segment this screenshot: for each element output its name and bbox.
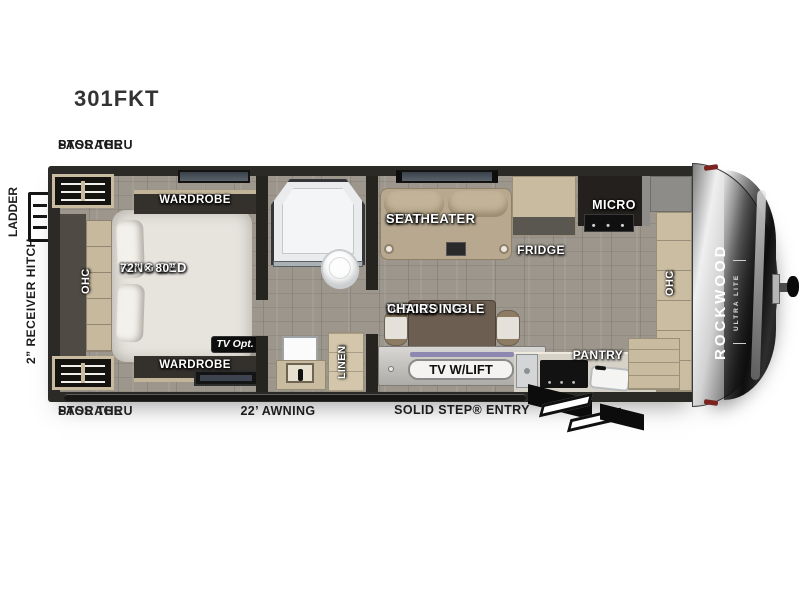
shelf-icon (61, 181, 105, 201)
wardrobe-label-top: WARDROBE (134, 194, 256, 206)
tv-screen-edge (410, 352, 514, 357)
corner-cabinet (650, 176, 692, 212)
pass-thru-box-bottom (52, 356, 114, 390)
bath-wall-left (256, 176, 268, 300)
cooktop-icon (540, 360, 588, 388)
receiver-hitch-label: 2” RECEIVER HITCH (24, 226, 42, 376)
bedroom-tv (194, 370, 258, 386)
floorplan-page: 301FKT PASS THRU STORAGE PASS THRU STORA… (0, 0, 800, 600)
awning-bar (64, 394, 526, 401)
faucet-icon (298, 369, 303, 381)
bath-wall-right (366, 334, 378, 392)
living-window (396, 170, 498, 183)
fridge (512, 176, 576, 236)
tv-lift-badge: TV W/LIFT (408, 359, 514, 380)
shelf-icon (61, 363, 105, 383)
cupholder-icon (384, 244, 394, 254)
bath-wall-right (366, 176, 378, 290)
pass-thru-storage-label-top-line2: STORAGE (58, 138, 122, 153)
entry-steps (600, 404, 644, 431)
pillow (116, 284, 145, 343)
folding-chair-right (496, 310, 520, 346)
kitchen-sink (589, 365, 631, 392)
king-bed-label-line2: 72” × 80” (120, 260, 176, 276)
ohc-label-left: OHC (80, 252, 98, 310)
entry-label: SOLID STEP® ENTRY (390, 403, 534, 418)
awning-label: 22’ AWNING (218, 404, 338, 419)
tv-opt-badge: TV Opt. (211, 336, 259, 353)
kitchen-appliance (516, 354, 538, 388)
bath-wall-left (256, 336, 268, 392)
range-icon (584, 214, 634, 232)
brand-logo: ROCKWOOD (712, 222, 732, 382)
model-title: 301FKT (74, 86, 159, 112)
ladder-label: LADDER (6, 180, 24, 244)
pantry-label: PANTRY (556, 348, 640, 362)
hitch-jack-knob (787, 276, 799, 297)
vanity-mirror (282, 336, 318, 362)
pantry-cabinet (628, 338, 680, 390)
fridge-label: FRIDGE (506, 243, 576, 257)
ohc-label-right: OHC (664, 254, 682, 312)
theater-console (446, 242, 466, 256)
micro-label: MICRO (584, 198, 644, 212)
brand-trim-logo: ULTRA LITE (733, 260, 746, 344)
bedroom-window (178, 170, 250, 183)
flip-up-table-label-line3: CHAIRS (387, 302, 437, 317)
pass-thru-storage-label-bottom-line2: STORAGE (58, 404, 122, 419)
wardrobe-label-bottom: WARDROBE (134, 359, 256, 371)
pass-thru-box-top (52, 174, 114, 208)
linen-label: LINEN (336, 336, 354, 388)
theater-seat-label-line2: SEAT (386, 211, 421, 227)
screw-icon (388, 366, 394, 372)
